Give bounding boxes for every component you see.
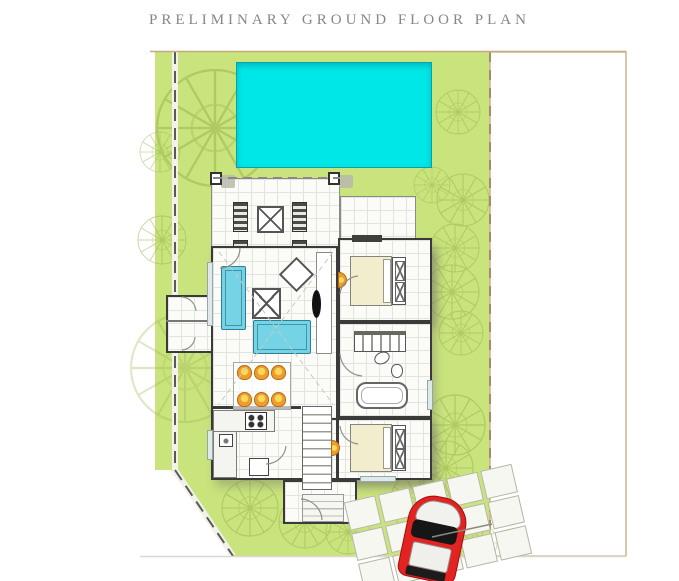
dining-chair <box>271 392 286 407</box>
paving-slab <box>351 526 389 561</box>
swimming-pool <box>236 62 432 168</box>
paving-slab <box>480 464 518 499</box>
coffee-table <box>252 288 281 319</box>
side-porch <box>166 295 213 353</box>
kitchen-sink <box>219 434 233 447</box>
sofa-seat <box>225 270 242 326</box>
wardrobe <box>354 331 406 352</box>
headboard-pattern <box>395 261 405 281</box>
post-shadow <box>339 175 353 188</box>
dining-chair <box>237 392 252 407</box>
toilet <box>391 364 403 378</box>
tv <box>312 290 321 318</box>
paving-slab <box>344 495 382 530</box>
bed-2-headboard <box>392 425 406 471</box>
porch-divider-wall <box>166 320 213 322</box>
sun-lounger <box>292 202 307 232</box>
sofa-seat <box>257 324 307 350</box>
headboard-pattern <box>395 282 405 302</box>
stove <box>245 412 267 430</box>
bathtub-inner <box>361 387 403 404</box>
pergola-post <box>328 172 340 185</box>
bathroom-window <box>427 380 433 410</box>
staircase <box>302 406 332 490</box>
terrace-table <box>257 206 284 233</box>
sofa-long <box>221 266 246 330</box>
dining-chair <box>271 365 286 380</box>
sofa-short <box>253 320 311 354</box>
living-window <box>207 262 213 326</box>
bathtub <box>356 382 408 409</box>
floor-plan-page: PRELIMINARY GROUND FLOOR PLAN <box>0 0 679 581</box>
bed-1-headboard <box>392 257 406 305</box>
paving-slab <box>460 533 498 568</box>
entrance-steps <box>302 494 344 522</box>
dining-chair <box>254 392 269 407</box>
dining-chair <box>237 365 252 380</box>
headboard-pattern <box>395 429 405 449</box>
pergola-post <box>210 172 222 185</box>
bedroom2-window <box>360 476 396 482</box>
plan-title: PRELIMINARY GROUND FLOOR PLAN <box>0 12 679 29</box>
bed-2-pillow <box>383 427 391 469</box>
fridge <box>249 458 269 476</box>
paving-slab <box>495 526 533 561</box>
bedroom1-window-bar <box>352 235 382 242</box>
headboard-pattern <box>395 449 405 469</box>
post-shadow <box>221 175 235 188</box>
dining-chair <box>254 365 269 380</box>
bed-1-pillow <box>383 259 391 303</box>
paving-slab <box>358 557 396 581</box>
sun-lounger <box>233 202 248 232</box>
paving-slab <box>487 495 525 530</box>
